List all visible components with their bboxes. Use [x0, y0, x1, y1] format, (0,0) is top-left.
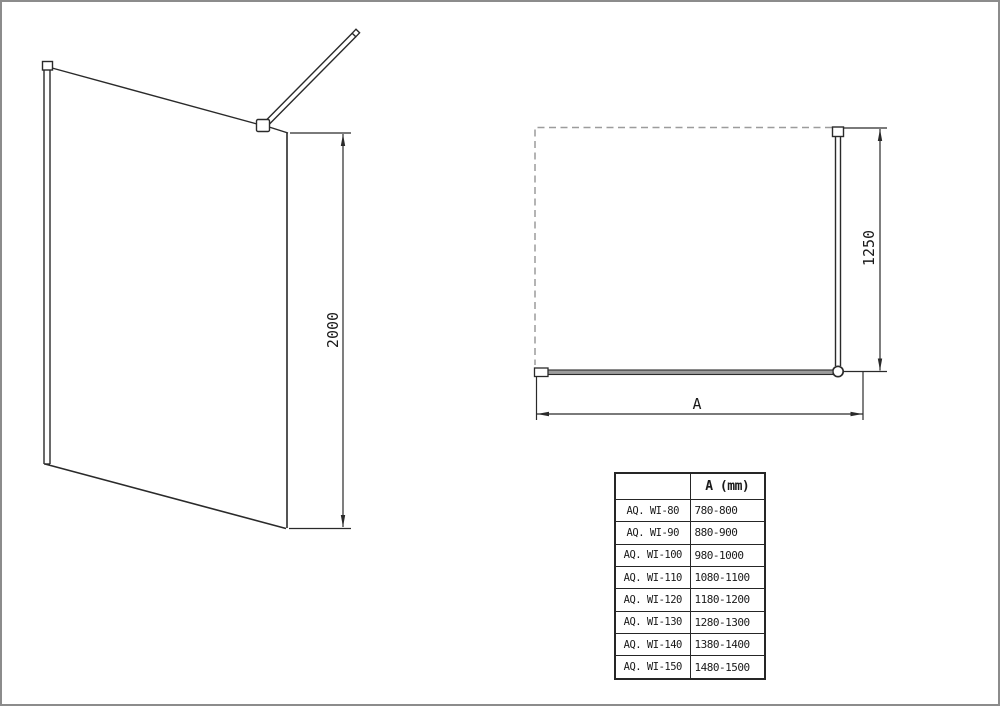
- bar-glass-connector-plan: [833, 366, 843, 376]
- bar-dim-label: 1250: [860, 230, 878, 266]
- technical-drawing-page: 2000: [0, 0, 1000, 706]
- header-model: [615, 473, 690, 500]
- cell-range: 780-800: [690, 500, 765, 522]
- table-row: AQ. WI-140 1380-1400: [615, 633, 765, 655]
- cell-model: AQ. WI-130: [615, 611, 690, 633]
- dimension-height-2000: 2000: [289, 133, 351, 529]
- dimension-bar-1250: 1250: [844, 128, 888, 372]
- table-row: AQ. WI-110 1080-1100: [615, 566, 765, 588]
- cell-range: 1280-1300: [690, 611, 765, 633]
- support-bar-plan: [833, 127, 844, 377]
- cell-model: AQ. WI-120: [615, 589, 690, 611]
- support-bar-end-cap: [352, 29, 359, 37]
- glass-panel-plan: [535, 368, 834, 377]
- arrow-down-icon: [878, 359, 882, 371]
- table-row: AQ. WI-130 1280-1300: [615, 611, 765, 633]
- cell-range: 1480-1500: [690, 656, 765, 679]
- arrow-down-icon: [341, 515, 345, 527]
- height-dim-label: 2000: [324, 312, 342, 348]
- cell-model: AQ. WI-140: [615, 633, 690, 655]
- glass-edge-strip: [547, 370, 833, 375]
- support-bar-3d: [257, 29, 360, 131]
- cell-model: AQ. WI-150: [615, 656, 690, 679]
- table-row: AQ. WI-100 980-1000: [615, 544, 765, 566]
- cell-range: 1180-1200: [690, 589, 765, 611]
- glass-panel-face-3d: [45, 68, 288, 529]
- arrow-up-icon: [878, 129, 882, 141]
- glass-top-edge: [52, 68, 257, 124]
- table-row: AQ. WI-80 780-800: [615, 500, 765, 522]
- size-table: A (mm) AQ. WI-80 780-800 AQ. WI-90 880-9…: [614, 472, 766, 680]
- cell-range: 1080-1100: [690, 566, 765, 588]
- bar-wall-mount: [833, 127, 844, 137]
- arrow-up-icon: [341, 134, 345, 146]
- wall-profile-3d: [43, 62, 53, 465]
- arrow-left-icon: [537, 412, 549, 416]
- cell-model: AQ. WI-100: [615, 544, 690, 566]
- cell-model: AQ. WI-110: [615, 566, 690, 588]
- bar-glass-connector-3d: [257, 120, 270, 132]
- panel-3d-view: 2000: [43, 29, 360, 528]
- table-row: AQ. WI-90 880-900: [615, 522, 765, 544]
- table-row: AQ. WI-120 1180-1200: [615, 589, 765, 611]
- drawing-svg: 2000: [0, 0, 1000, 706]
- header-a-mm: A (mm): [690, 473, 765, 500]
- table-header-row: A (mm): [615, 473, 765, 500]
- arrow-right-icon: [851, 412, 863, 416]
- dashed-enclosure-outline: [535, 128, 832, 366]
- glass-top-right-edge: [269, 127, 288, 133]
- dimension-width-A: A: [537, 372, 864, 420]
- table-row: AQ. WI-150 1480-1500: [615, 656, 765, 679]
- glass-bottom-edge: [45, 464, 286, 529]
- cell-range: 880-900: [690, 522, 765, 544]
- cell-model: AQ. WI-80: [615, 500, 690, 522]
- cell-model: AQ. WI-90: [615, 522, 690, 544]
- wall-profile-top-cap: [43, 62, 53, 71]
- width-dim-label: A: [692, 395, 701, 413]
- cell-range: 980-1000: [690, 544, 765, 566]
- cell-range: 1380-1400: [690, 633, 765, 655]
- wall-profile-plan: [535, 368, 549, 377]
- plan-view: 1250 A: [535, 127, 888, 420]
